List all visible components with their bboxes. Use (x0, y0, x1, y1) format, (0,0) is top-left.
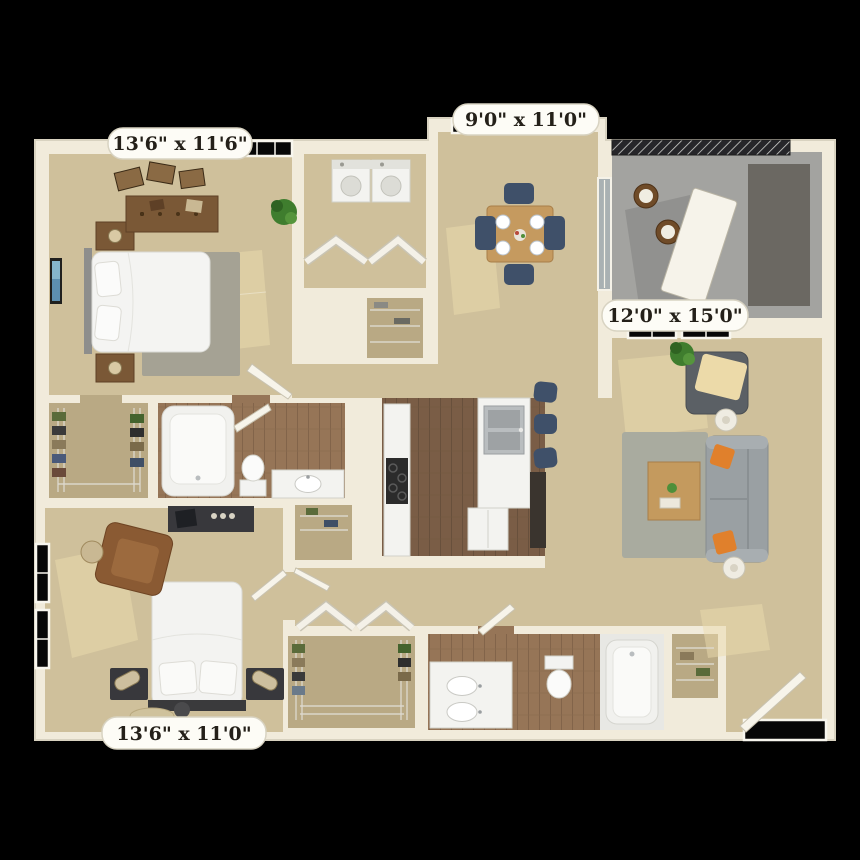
sofa (706, 436, 768, 562)
double-sink (484, 406, 524, 454)
bed1-headboard (84, 248, 92, 354)
bed2-pillow (199, 660, 238, 695)
label-living: 12'0" x 15'0" (602, 300, 748, 331)
dining-dimensions: 9'0" x 11'0" (465, 109, 587, 131)
double-vanity (430, 662, 512, 728)
balcony-sliding-door (598, 178, 611, 290)
bar-stool (533, 381, 558, 403)
corridor-floor (292, 364, 438, 398)
bedroom1-dimensions: 13'6" x 11'6" (112, 133, 247, 155)
bed2-pillow (159, 660, 198, 695)
closet1-door-opening (80, 395, 122, 403)
dresser-item (185, 199, 203, 213)
dining-chair (504, 183, 534, 204)
bedroom2-dimensions: 13'6" x 11'0" (116, 723, 251, 745)
dining-chair (504, 264, 534, 285)
toilet (240, 455, 266, 496)
round-side-table (81, 541, 103, 563)
bedroom2-door-opening (283, 572, 295, 620)
balcony-railing (612, 140, 790, 155)
storage-closet-interior (748, 164, 810, 306)
bar-stool (534, 414, 557, 434)
dining-chair (544, 216, 565, 250)
toilet (545, 656, 573, 698)
round-pouf (174, 702, 190, 718)
floor-plan-stage: 13'6" x 11'6" 9'0" x 11'0" 12'0" x 15'0"… (0, 0, 860, 860)
tray (660, 498, 680, 508)
label-dining: 9'0" x 11'0" (453, 104, 599, 135)
media-console (168, 506, 254, 532)
closet2-floor (295, 505, 352, 560)
armchair (686, 352, 748, 414)
table-plant (667, 483, 677, 493)
floor-plan-render: 13'6" x 11'6" 9'0" x 11'0" 12'0" x 15'0"… (0, 0, 860, 860)
bed1-pillow (94, 305, 121, 341)
label-bedroom1: 13'6" x 11'6" (108, 128, 252, 159)
place-setting (496, 215, 510, 229)
place-setting (530, 241, 544, 255)
label-bedroom2: 13'6" x 11'0" (102, 717, 266, 749)
picture-frame (179, 168, 205, 188)
place-setting (496, 241, 510, 255)
tv (175, 509, 197, 529)
bar-stool (533, 447, 558, 469)
bathtub (600, 634, 664, 730)
place-setting (530, 215, 544, 229)
picture-frame (147, 162, 176, 184)
vanity (272, 470, 344, 498)
living-dimensions: 12'0" x 15'0" (607, 305, 742, 327)
dining-chair (475, 216, 496, 250)
bed1-pillow (94, 261, 121, 297)
wall-art (50, 258, 62, 304)
tall-cabinet (530, 472, 546, 548)
lamp (109, 230, 122, 243)
lamp (109, 362, 122, 375)
dresser (126, 196, 218, 232)
bathroom1-door-opening (232, 395, 270, 403)
